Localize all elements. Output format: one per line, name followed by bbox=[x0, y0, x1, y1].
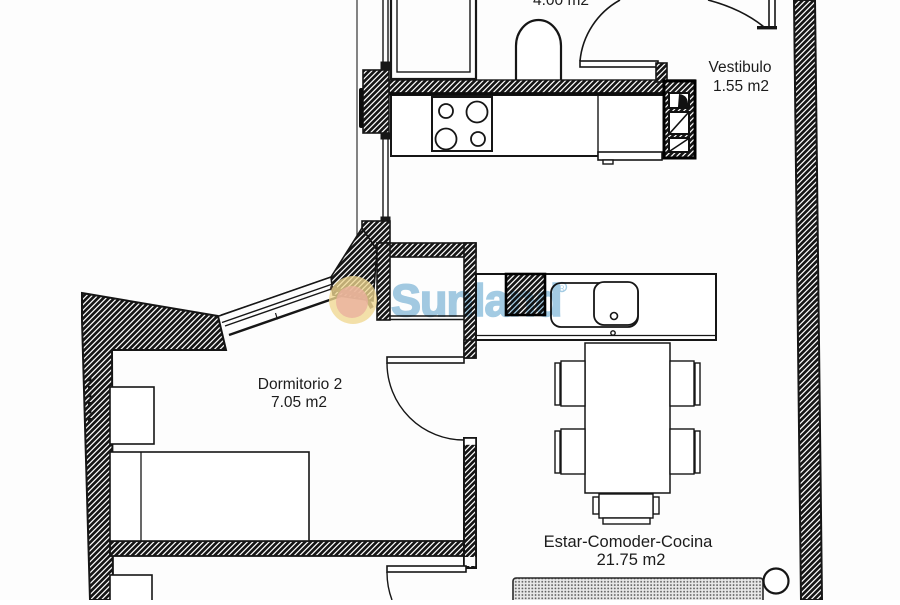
svg-text:7.05 m2: 7.05 m2 bbox=[271, 394, 327, 411]
svg-text:1.55 m2: 1.55 m2 bbox=[713, 78, 769, 95]
svg-text:Dormitorio 2: Dormitorio 2 bbox=[258, 376, 342, 393]
svg-text:21.75 m2: 21.75 m2 bbox=[597, 551, 666, 569]
svg-text:Estar-Comoder-Cocina: Estar-Comoder-Cocina bbox=[544, 533, 714, 551]
svg-text:R: R bbox=[559, 286, 564, 293]
svg-text:Vestibulo: Vestibulo bbox=[709, 59, 772, 76]
svg-text:Sunland: Sunland bbox=[391, 275, 562, 326]
svg-text:4.00 m2: 4.00 m2 bbox=[533, 0, 589, 9]
